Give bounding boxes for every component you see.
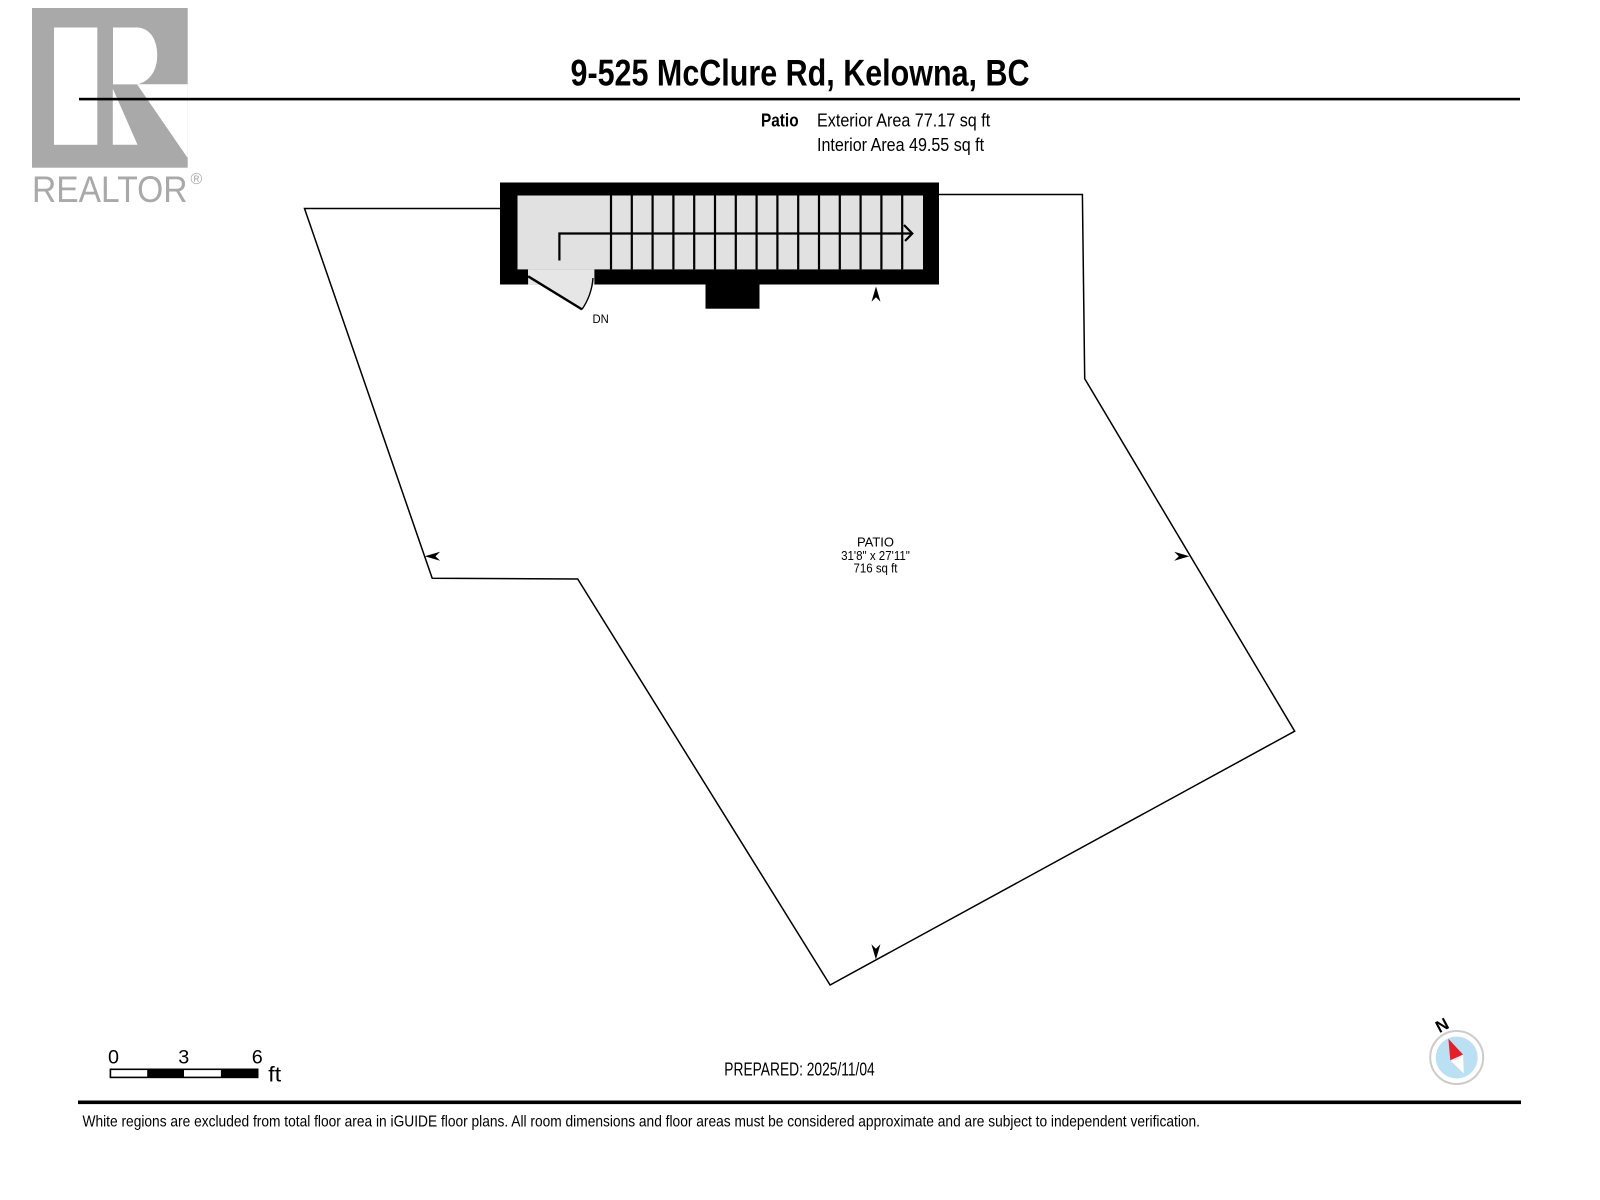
svg-text:White regions are excluded fro: White regions are excluded from total fl… xyxy=(83,1113,1201,1130)
svg-text:®: ® xyxy=(191,171,203,188)
svg-text:Interior Area 49.55 sq ft: Interior Area 49.55 sq ft xyxy=(817,135,984,155)
svg-text:REALTOR: REALTOR xyxy=(32,169,188,210)
svg-text:9-525 McClure Rd, Kelowna, BC: 9-525 McClure Rd, Kelowna, BC xyxy=(571,53,1030,94)
svg-text:3: 3 xyxy=(178,1047,189,1069)
svg-text:6: 6 xyxy=(252,1047,263,1069)
svg-text:ft: ft xyxy=(268,1063,281,1087)
svg-text:0: 0 xyxy=(108,1047,119,1069)
svg-text:DN: DN xyxy=(593,314,609,326)
svg-text:Patio: Patio xyxy=(761,110,799,130)
svg-text:PREPARED: 2025/11/04: PREPARED: 2025/11/04 xyxy=(724,1060,874,1080)
svg-text:716 sq ft: 716 sq ft xyxy=(854,560,898,575)
svg-text:Exterior Area 77.17 sq ft: Exterior Area 77.17 sq ft xyxy=(817,110,990,130)
